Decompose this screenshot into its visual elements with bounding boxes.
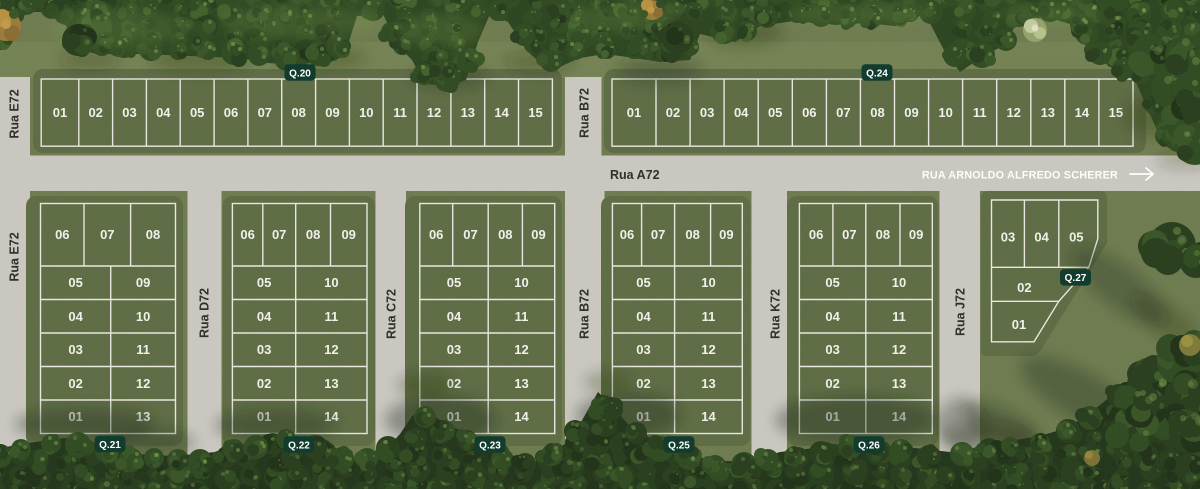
svg-text:Q.24: Q.24: [866, 68, 888, 79]
svg-text:Q.23: Q.23: [479, 440, 501, 451]
svg-text:Q.22: Q.22: [288, 440, 310, 451]
svg-text:Q.25: Q.25: [668, 440, 690, 451]
svg-text:Q.27: Q.27: [1065, 273, 1087, 284]
svg-text:Q.26: Q.26: [858, 440, 880, 451]
svg-text:Q.20: Q.20: [289, 68, 311, 79]
svg-text:Q.21: Q.21: [99, 440, 121, 451]
